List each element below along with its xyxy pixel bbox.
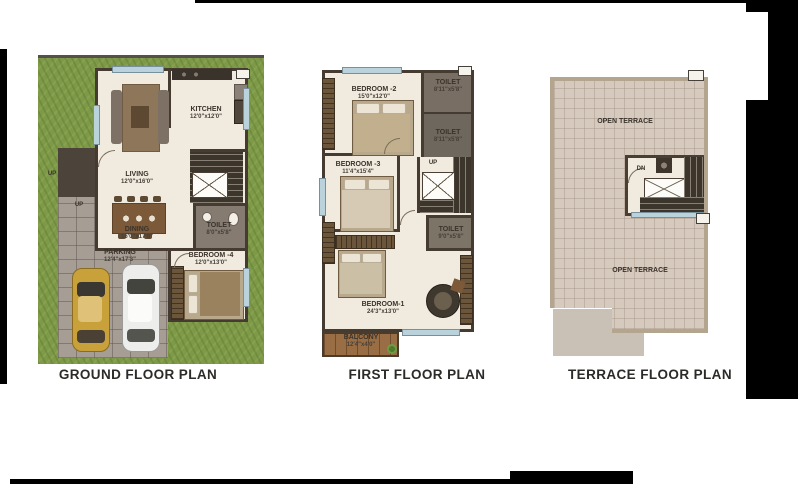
dining-chair bbox=[140, 196, 148, 202]
wardrobe bbox=[171, 266, 184, 320]
room-dims: 11'4"x15'4" bbox=[336, 169, 381, 176]
dining-chair bbox=[114, 196, 122, 202]
stair-void-cross bbox=[192, 172, 228, 198]
utility-box bbox=[688, 70, 704, 81]
window bbox=[93, 105, 100, 145]
window bbox=[402, 329, 460, 336]
black-border-left bbox=[0, 49, 7, 384]
room-dims: 12'4"x4'0" bbox=[344, 342, 379, 349]
window bbox=[243, 88, 250, 130]
terrace-floor-title: TERRACE FLOOR PLAN bbox=[568, 367, 732, 382]
room-name: LIVING bbox=[121, 171, 153, 179]
pillow bbox=[362, 253, 382, 263]
up-label: UP bbox=[75, 202, 83, 208]
pillow bbox=[382, 103, 406, 114]
room-name: BEDROOM -3 bbox=[336, 161, 381, 169]
water-tank bbox=[656, 158, 672, 173]
up-label: UP bbox=[48, 171, 56, 177]
up-label: UP bbox=[429, 160, 437, 166]
room-name: BALCONY bbox=[344, 334, 379, 342]
black-border-right bbox=[768, 12, 798, 399]
staircase bbox=[453, 157, 471, 213]
dining-label: DINING 16'0"x17'8" bbox=[121, 226, 153, 242]
car-white-roof bbox=[128, 294, 152, 322]
wardrobe bbox=[322, 78, 335, 150]
porch-ramp bbox=[58, 148, 100, 197]
pillow bbox=[188, 295, 198, 314]
staircase bbox=[420, 200, 453, 213]
window bbox=[243, 268, 250, 307]
room-dims: 8'11"x5'8" bbox=[434, 137, 462, 144]
room-name: BEDROOM -4 bbox=[189, 252, 234, 260]
bedroom4-label: BEDROOM -4 12'0"x13'0" bbox=[189, 252, 234, 268]
pillow bbox=[341, 253, 361, 263]
room-dims: 15'0"x12'0" bbox=[352, 94, 397, 101]
black-border-top-right bbox=[746, 0, 798, 12]
plant bbox=[387, 344, 397, 354]
room-name: TOILET bbox=[434, 129, 462, 137]
area-name: OPEN TERRACE bbox=[597, 118, 653, 126]
window bbox=[631, 212, 704, 218]
pillow bbox=[344, 179, 366, 190]
black-border-right-inner bbox=[746, 100, 768, 399]
pillow bbox=[368, 179, 390, 190]
dining-chair bbox=[153, 196, 161, 202]
kitchen-counter bbox=[172, 69, 232, 80]
wall bbox=[426, 248, 471, 251]
coffee-table bbox=[131, 106, 149, 128]
room-name: TOILET bbox=[438, 226, 463, 234]
room-dims: 12'0"x13'0" bbox=[189, 260, 234, 267]
room-name: BEDROOM -2 bbox=[352, 86, 397, 94]
utility-box bbox=[236, 69, 250, 79]
blanket bbox=[200, 272, 240, 316]
room-dims: 12'4"x17'3" bbox=[104, 257, 136, 264]
ground-floor-title: GROUND FLOOR PLAN bbox=[59, 367, 217, 382]
window bbox=[112, 66, 164, 73]
wardrobe bbox=[335, 235, 395, 249]
floor-plan-sheet: KITCHEN 12'0"x12'0" LIVING 12'0"x16'0" D… bbox=[0, 0, 798, 484]
room-dims: 16'0"x17'8" bbox=[121, 234, 153, 241]
kitchen-label: KITCHEN 12'0"x12'0" bbox=[190, 106, 222, 122]
room-dims: 9'0"x5'8" bbox=[438, 234, 463, 241]
sofa-right bbox=[158, 90, 169, 144]
window bbox=[319, 178, 326, 216]
bedroom3-label: BEDROOM -3 11'4"x15'4" bbox=[336, 161, 381, 177]
dining-chair bbox=[127, 196, 135, 202]
area-name: OPEN TERRACE bbox=[612, 267, 668, 275]
living-label: LIVING 12'0"x16'0" bbox=[121, 171, 153, 187]
black-border-top bbox=[195, 0, 746, 3]
stair-void-cross bbox=[422, 172, 455, 200]
washbasin bbox=[202, 212, 212, 222]
parking-label: PARKING 12'4"x17'3" bbox=[104, 249, 136, 265]
toilet-label: TOILET 8'11"x5'8" bbox=[434, 79, 462, 95]
open-terrace-label: OPEN TERRACE bbox=[612, 267, 668, 275]
wardrobe bbox=[322, 222, 335, 264]
room-name: TOILET bbox=[206, 222, 231, 230]
room-dims: 24'3"x13'0" bbox=[362, 309, 405, 316]
black-border-bottom-thick bbox=[510, 471, 633, 484]
blanket bbox=[340, 263, 382, 294]
blanket bbox=[354, 114, 410, 152]
car-gold-roof bbox=[78, 296, 102, 322]
open-terrace-label: OPEN TERRACE bbox=[597, 118, 653, 126]
utility-box bbox=[458, 66, 472, 76]
toilet-label: TOILET 8'11"x5'8" bbox=[434, 129, 462, 145]
sofa-left bbox=[111, 90, 122, 144]
dn-label: DN bbox=[637, 166, 646, 172]
toilet-label: TOILET 8'0"x5'8" bbox=[206, 222, 231, 238]
room-name: KITCHEN bbox=[190, 106, 222, 114]
wall bbox=[424, 112, 471, 114]
wall bbox=[426, 215, 471, 218]
balcony-label: BALCONY 12'4"x4'0" bbox=[344, 334, 379, 350]
room-name: TOILET bbox=[434, 79, 462, 87]
first-floor-title: FIRST FLOOR PLAN bbox=[349, 367, 486, 382]
room-dims: 12'0"x16'0" bbox=[121, 179, 153, 186]
toilet-label: TOILET 9'0"x5'8" bbox=[438, 226, 463, 242]
window bbox=[342, 67, 402, 74]
wall bbox=[426, 215, 429, 250]
room-dims: 12'0"x12'0" bbox=[190, 114, 222, 121]
utility-box bbox=[696, 213, 710, 224]
bedroom1-label: BEDROOM-1 24'3"x13'0" bbox=[362, 301, 405, 317]
room-name: PARKING bbox=[104, 249, 136, 257]
room-name: BEDROOM-1 bbox=[362, 301, 405, 309]
pillow bbox=[188, 274, 198, 293]
pillow bbox=[356, 103, 380, 114]
room-dims: 8'0"x5'8" bbox=[206, 230, 231, 237]
room-name: DINING bbox=[121, 226, 153, 234]
room-dims: 8'11"x5'8" bbox=[434, 87, 462, 94]
blanket bbox=[342, 190, 390, 228]
bedroom2-label: BEDROOM -2 15'0"x12'0" bbox=[352, 86, 397, 102]
